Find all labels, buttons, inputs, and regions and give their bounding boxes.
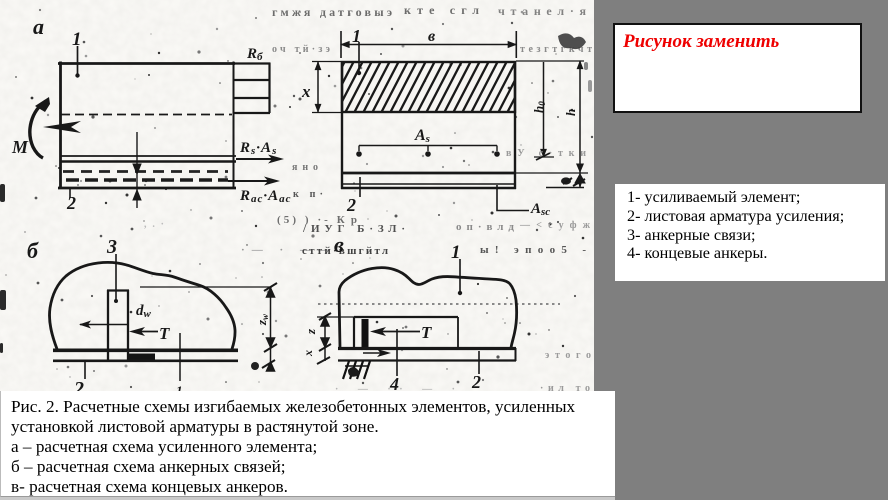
svg-text:Т: Т bbox=[421, 323, 432, 342]
svg-text:а: а bbox=[33, 14, 44, 39]
svg-text:Rs·Аs: Rs·Аs bbox=[239, 140, 277, 157]
svg-text:М: М bbox=[11, 137, 29, 157]
svg-text:2: 2 bbox=[66, 193, 76, 213]
svg-text:2: 2 bbox=[73, 378, 84, 391]
svg-text:1: 1 bbox=[451, 242, 461, 263]
svg-text:4: 4 bbox=[389, 374, 399, 391]
svg-text:х: х bbox=[301, 82, 311, 101]
svg-text:Т: Т bbox=[159, 324, 170, 343]
svg-text:2: 2 bbox=[346, 195, 356, 215]
svg-text:в: в bbox=[334, 232, 344, 257]
svg-text:z: z bbox=[303, 328, 318, 335]
svg-text:в: в bbox=[428, 28, 435, 45]
svg-text:2: 2 bbox=[471, 372, 481, 391]
svg-text:h: h bbox=[563, 109, 578, 116]
svg-text:1: 1 bbox=[176, 383, 183, 391]
svg-text:х: х bbox=[301, 350, 315, 357]
svg-text:яно: яно bbox=[292, 162, 318, 173]
svg-text:б: б bbox=[27, 238, 39, 263]
